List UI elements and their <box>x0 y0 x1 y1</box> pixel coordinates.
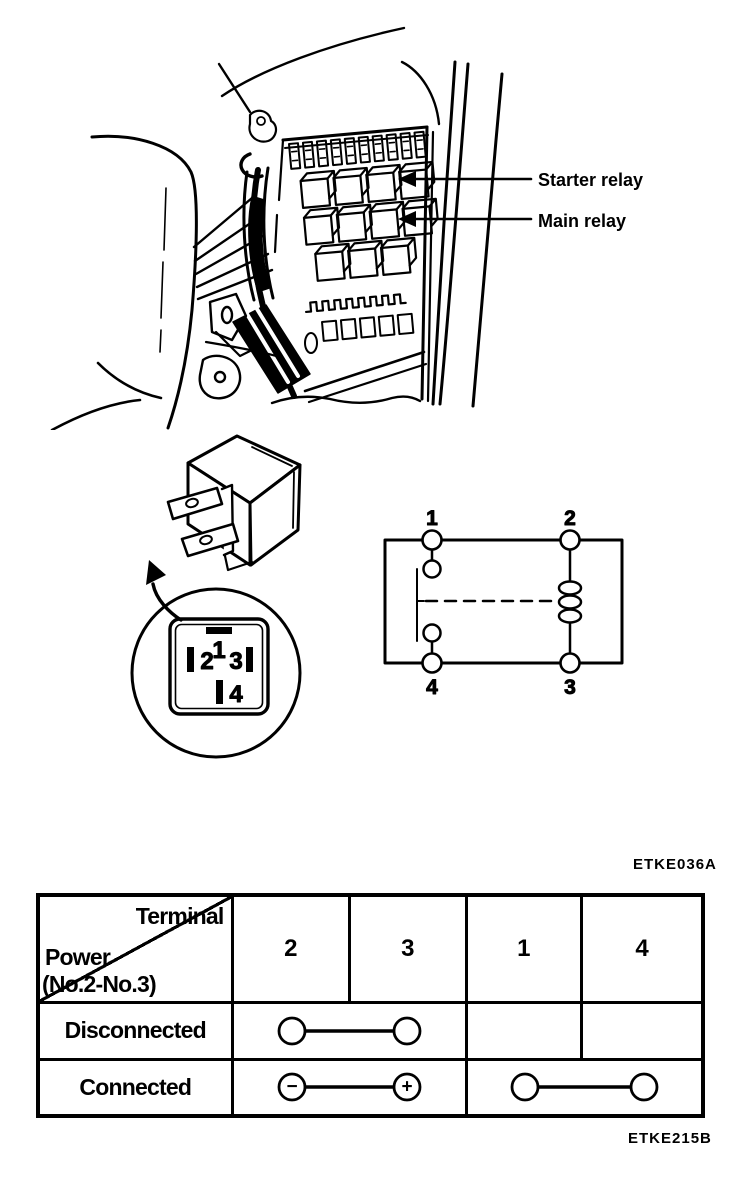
corner-terminal-label: Terminal <box>136 903 224 930</box>
continuity-symbol <box>235 1004 463 1058</box>
hood-lines <box>219 28 404 142</box>
row-label-disconnected: Disconnected <box>38 1002 232 1059</box>
pin-3-slot <box>246 647 253 672</box>
pin-1-slot <box>206 627 232 634</box>
pin-2-label: 2 <box>200 648 213 675</box>
relay-detail-figure: 1 2 3 4 <box>0 430 752 770</box>
figure-code-bottom: ETKE215B <box>628 1130 712 1147</box>
main-relay-callout <box>398 211 531 227</box>
terminal-4-label: 4 <box>426 676 438 699</box>
connection-symbol-polarity-2-3: − + <box>232 1059 466 1116</box>
pin-1-label: 1 <box>212 637 225 664</box>
service-manual-page: Starter relay Main relay <box>0 0 752 1182</box>
row-label-connected: Connected <box>38 1059 232 1116</box>
magnifier-circle <box>132 589 300 757</box>
wiring-harness <box>194 154 317 396</box>
figure-code-top: ETKE036A <box>633 856 717 873</box>
engine-bay-figure: Starter relay Main relay <box>0 0 752 430</box>
starter-relay-callout <box>398 171 531 187</box>
pin-layout-magnifier <box>132 589 300 757</box>
minus-symbol: − <box>286 1076 297 1097</box>
terminal-3-label: 3 <box>564 676 576 699</box>
main-relay-label: Main relay <box>538 211 626 231</box>
relay-circuit-schematic <box>385 531 622 673</box>
pin-2-slot <box>187 647 194 672</box>
lower-fuse-row <box>322 314 413 341</box>
connection-symbol-1-4 <box>466 1059 703 1116</box>
starter-relay-label: Starter relay <box>538 170 643 190</box>
col-header-terminal-1: 1 <box>466 895 581 1002</box>
col-header-terminal-2: 2 <box>232 895 349 1002</box>
terminal-1-label: 1 <box>426 507 438 530</box>
pin-4-slot <box>216 680 223 704</box>
empty-cell-4 <box>581 1002 703 1059</box>
terminal-2-label: 2 <box>564 507 576 530</box>
table-row-connected: Connected − + <box>38 1059 703 1116</box>
continuity-symbol <box>469 1061 700 1114</box>
magnifier-arrow-icon <box>146 560 181 620</box>
corner-cell: Terminal Power (No.2-No.3) <box>38 895 232 1002</box>
plus-symbol: + <box>401 1076 412 1097</box>
pin-4-label: 4 <box>229 681 243 708</box>
col-header-terminal-4: 4 <box>581 895 703 1002</box>
corner-power-sub-label: (No.2-No.3) <box>42 971 156 998</box>
fuse-clip-strip <box>305 294 405 312</box>
table-header-row: Terminal Power (No.2-No.3) 2 3 1 4 <box>38 895 703 1002</box>
corner-power-label: Power <box>45 944 110 971</box>
relay-unit-drawing <box>168 436 300 570</box>
empty-cell-1 <box>466 1002 581 1059</box>
continuity-symbol-polarity: − + <box>235 1061 463 1114</box>
connection-symbol-2-3 <box>232 1002 466 1059</box>
coil-symbol <box>559 549 581 654</box>
fender-lines <box>52 136 196 430</box>
table-row-disconnected: Disconnected <box>38 1002 703 1059</box>
pin-3-label: 3 <box>229 648 242 675</box>
terminal-continuity-table: Terminal Power (No.2-No.3) 2 3 1 4 Disco… <box>36 893 705 1118</box>
col-header-terminal-3: 3 <box>349 895 466 1002</box>
